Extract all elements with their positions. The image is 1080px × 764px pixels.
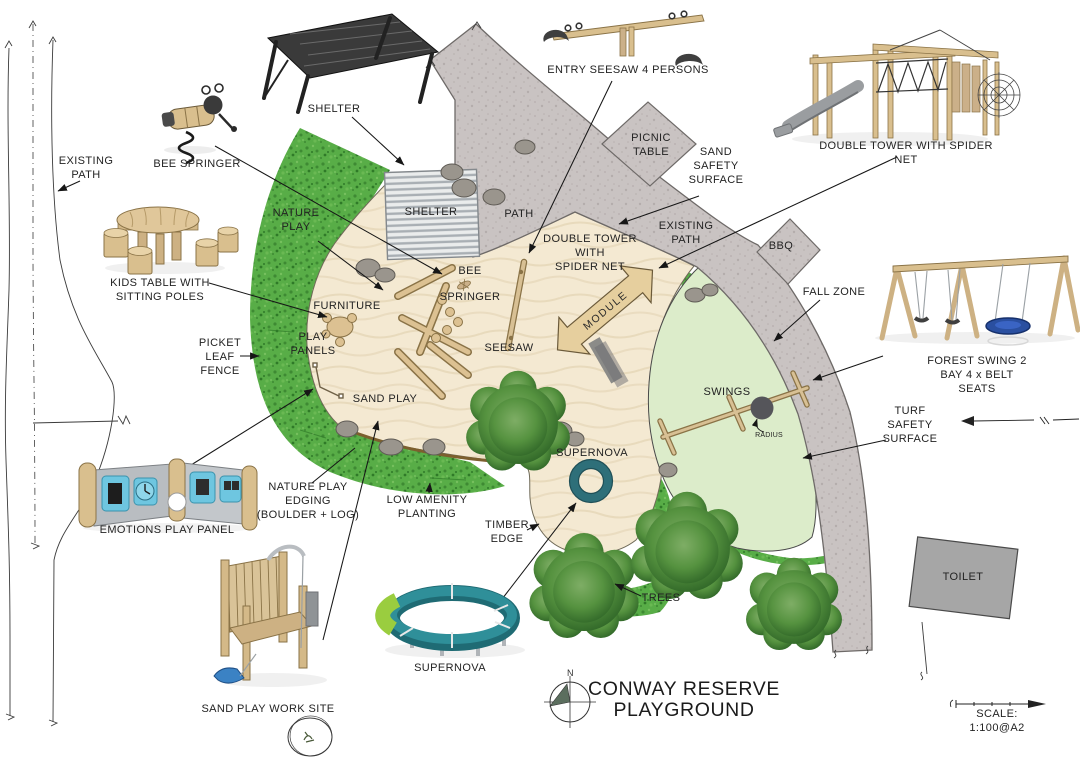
label-picnic-table: PICNIC TABLE <box>631 131 671 159</box>
label-sand-safety-surface: SAND SAFETY SURFACE <box>689 145 744 187</box>
label-swings: SWINGS <box>703 385 750 399</box>
label-supernova-plan: SUPERNOVA <box>556 446 628 460</box>
label-sand-play-work-site: SAND PLAY WORK SITE <box>201 702 334 716</box>
shelter-3d-image <box>264 14 438 112</box>
label-entry-seesaw: ENTRY SEESAW 4 PERSONS <box>547 63 708 77</box>
label-shelter-legend: SHELTER <box>308 102 361 116</box>
label-supernova-legend: SUPERNOVA <box>414 661 486 675</box>
label-emotions-play-panel: EMOTIONS PLAY PANEL <box>100 523 235 537</box>
label-play-panels: PLAY PANELS <box>291 330 336 358</box>
label-sand-play: SAND PLAY <box>353 392 418 406</box>
label-bbq: BBQ <box>769 239 793 253</box>
label-furniture: FURNITURE <box>313 299 380 313</box>
label-kids-table: KIDS TABLE WITH SITTING POLES <box>110 276 210 304</box>
label-forest-swing: FOREST SWING 2 BAY 4 x BELT SEATS <box>926 354 1029 396</box>
label-path-plan: PATH <box>504 207 533 221</box>
label-nature-play: NATURE PLAY <box>273 206 320 234</box>
supernova-3d-image <box>383 583 525 658</box>
forest-swing-3d-image <box>875 256 1078 345</box>
label-trees: TREES <box>642 591 681 605</box>
entry-seesaw-3d-image <box>543 11 704 66</box>
bee-springer-3d-image <box>161 84 237 163</box>
label-existing-path-left: EXISTING PATH <box>59 154 114 182</box>
survey-mark-right <box>961 416 1079 426</box>
label-double-tower-plan: DOUBLE TOWER WITH SPIDER NET <box>543 232 637 274</box>
label-nature-play-edging: NATURE PLAY EDGING (BOULDER + LOG) <box>257 480 359 522</box>
label-double-tower-legend: DOUBLE TOWER WITH SPIDER NET <box>819 139 993 167</box>
label-bee-springer-plan: BEE SPRINGER <box>440 258 501 311</box>
playground-site-plan: MODULE <box>0 0 1080 764</box>
compass-north-label: N <box>567 668 574 678</box>
label-seesaw: SEESAW <box>484 341 533 355</box>
label-radius: RADIUS <box>755 432 783 441</box>
basket-swing-radius <box>751 397 774 420</box>
label-existing-path-plan: EXISTING PATH <box>659 219 714 247</box>
sketch-stamp-icon <box>287 713 334 758</box>
label-shelter-plan: SHELTER <box>405 205 458 219</box>
drawing-title: CONWAY RESERVE PLAYGROUND <box>588 679 780 721</box>
label-turf-safety-surface: TURF SAFETY SURFACE <box>883 404 938 446</box>
emotions-play-panel-3d-image <box>79 459 257 533</box>
label-toilet: TOILET <box>943 570 984 584</box>
label-timber-edge: TIMBER EDGE <box>485 518 529 546</box>
sand-play-work-site-3d-image <box>214 547 327 687</box>
label-low-amenity-planting: LOW AMENITY PLANTING <box>387 493 468 521</box>
kids-table-3d-image <box>104 207 238 274</box>
label-fall-zone: FALL ZONE <box>803 285 866 299</box>
scale-text: SCALE: 1:100@A2 <box>956 707 1039 735</box>
label-picket-leaf-fence: PICKET LEAF FENCE <box>199 336 241 378</box>
label-bee-springer-legend: BEE SPRINGER <box>153 157 240 171</box>
site-plan-svg: MODULE <box>0 0 1080 764</box>
double-tower-3d-image <box>773 30 1020 146</box>
existing-path-survey-lines <box>5 21 130 726</box>
